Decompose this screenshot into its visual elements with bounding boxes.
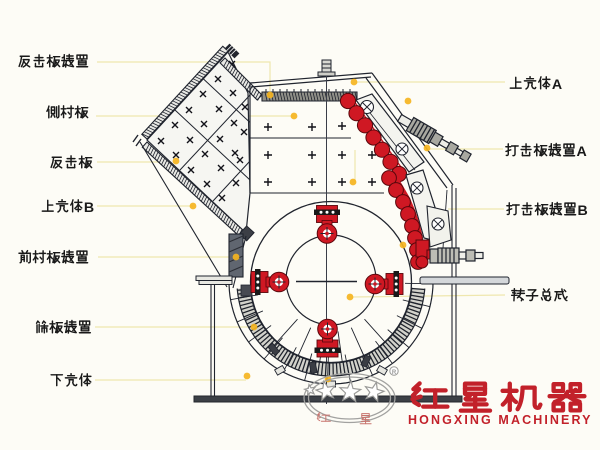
svg-text:A: A (552, 77, 562, 93)
svg-text:HONGXING MACHINERY: HONGXING MACHINERY (408, 413, 593, 427)
svg-text:R: R (392, 370, 397, 376)
svg-text:B: B (84, 200, 94, 216)
svg-text:A: A (577, 144, 587, 160)
svg-text:B: B (578, 203, 588, 219)
